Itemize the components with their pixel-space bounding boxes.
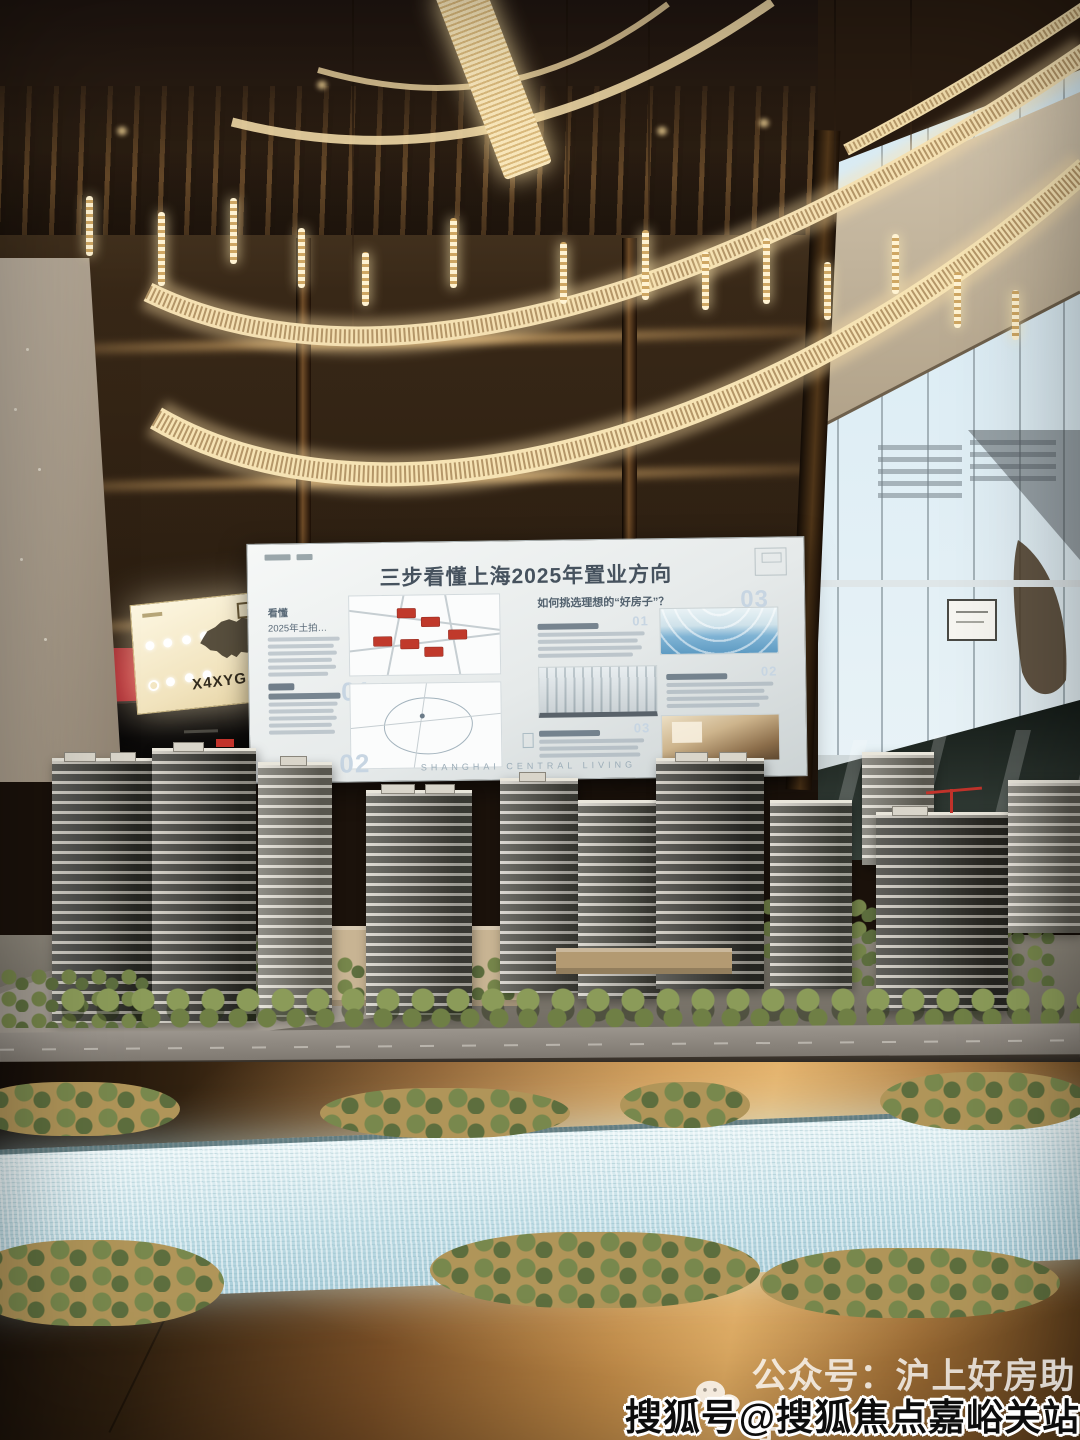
- right-item-2-text: 02: [666, 664, 778, 712]
- led-strip: [230, 198, 237, 264]
- blurred-text-line: [269, 701, 338, 706]
- downlight: [116, 126, 128, 136]
- lightbox-dot: [163, 637, 173, 647]
- chandelier-cable: [566, 0, 568, 252]
- board-logos: [264, 554, 312, 561]
- architectural-scale-model: [0, 730, 1080, 1080]
- downlight: [656, 126, 668, 136]
- item-number: 02: [761, 664, 778, 679]
- river-island: [620, 1082, 750, 1128]
- left-section-b: [269, 679, 345, 737]
- led-strip: [362, 252, 369, 306]
- blurred-text-line: [268, 657, 332, 662]
- led-strip: [642, 230, 649, 300]
- blurred-title: [269, 692, 341, 699]
- sohu-watermark: 搜狐号@搜狐焦点嘉峪关站: [470, 1387, 1080, 1440]
- lightbox-dot: [181, 635, 191, 645]
- river-island: [0, 1240, 224, 1326]
- model-entry-canopy: [556, 948, 732, 974]
- blurred-text-line: [269, 715, 337, 720]
- left-section-a: 看懂 2025年土拍…: [268, 603, 344, 679]
- section-kicker: 看懂: [268, 603, 343, 619]
- led-strip: [1012, 290, 1019, 340]
- river-island: [880, 1072, 1080, 1130]
- led-strip: [892, 234, 899, 294]
- blurred-text-line: [268, 643, 334, 648]
- right-item-1-text: 01: [537, 613, 649, 661]
- downlight: [758, 118, 770, 128]
- led-strip: [158, 212, 165, 286]
- pool-photo: [660, 606, 779, 655]
- led-strip: [86, 196, 93, 256]
- led-strip: [954, 272, 961, 328]
- model-crane: [926, 787, 982, 795]
- board-headline: 三步看懂上海2025年置业方向: [248, 556, 804, 594]
- led-strip: [298, 228, 305, 288]
- led-strip: [763, 238, 770, 304]
- lightbox-dot: [166, 676, 176, 686]
- lightbox-code: X4XYG: [192, 669, 248, 693]
- model-roof-marker: [216, 739, 234, 747]
- model-crane: [950, 789, 953, 813]
- chandelier-cable: [352, 0, 354, 345]
- led-strip: [824, 262, 831, 320]
- lightbox-dot: [145, 640, 155, 650]
- river-island: [760, 1248, 1060, 1318]
- blurred-kicker: [269, 683, 295, 690]
- led-strip: [450, 218, 457, 288]
- section-title: 2025年土拍…: [268, 619, 343, 634]
- lightbox-logo-bar: [142, 611, 162, 617]
- led-strip: [560, 242, 567, 304]
- downlight: [316, 80, 328, 90]
- model-tower: [1008, 780, 1080, 933]
- model-tower: [770, 800, 852, 989]
- land-auction-map: [348, 594, 501, 677]
- item-number: 01: [632, 613, 649, 628]
- blurred-text-line: [268, 650, 337, 655]
- metro-photo: [538, 665, 657, 718]
- river-island: [320, 1088, 570, 1138]
- blurred-text-line: [269, 671, 329, 676]
- right-heading: 如何挑选理想的“好房子”？: [537, 593, 669, 611]
- chandelier-cable: [834, 0, 836, 222]
- river-island: [430, 1232, 760, 1308]
- blurred-text-line: [269, 708, 334, 713]
- chandelier-cable: [910, 0, 912, 160]
- blurred-text-line: [268, 664, 336, 669]
- lightbox-dot: [148, 679, 160, 691]
- blurred-text-line: [269, 722, 332, 727]
- river-island: [0, 1082, 180, 1136]
- sales-gallery-photo: X4XYG 三步看懂上海2025年置业方向 看懂 2025年土拍…: [0, 0, 1080, 1440]
- blurred-text-line: [268, 636, 339, 641]
- model-tower: [258, 762, 332, 1017]
- led-strip: [702, 252, 709, 310]
- glass-door-sign: [948, 600, 996, 640]
